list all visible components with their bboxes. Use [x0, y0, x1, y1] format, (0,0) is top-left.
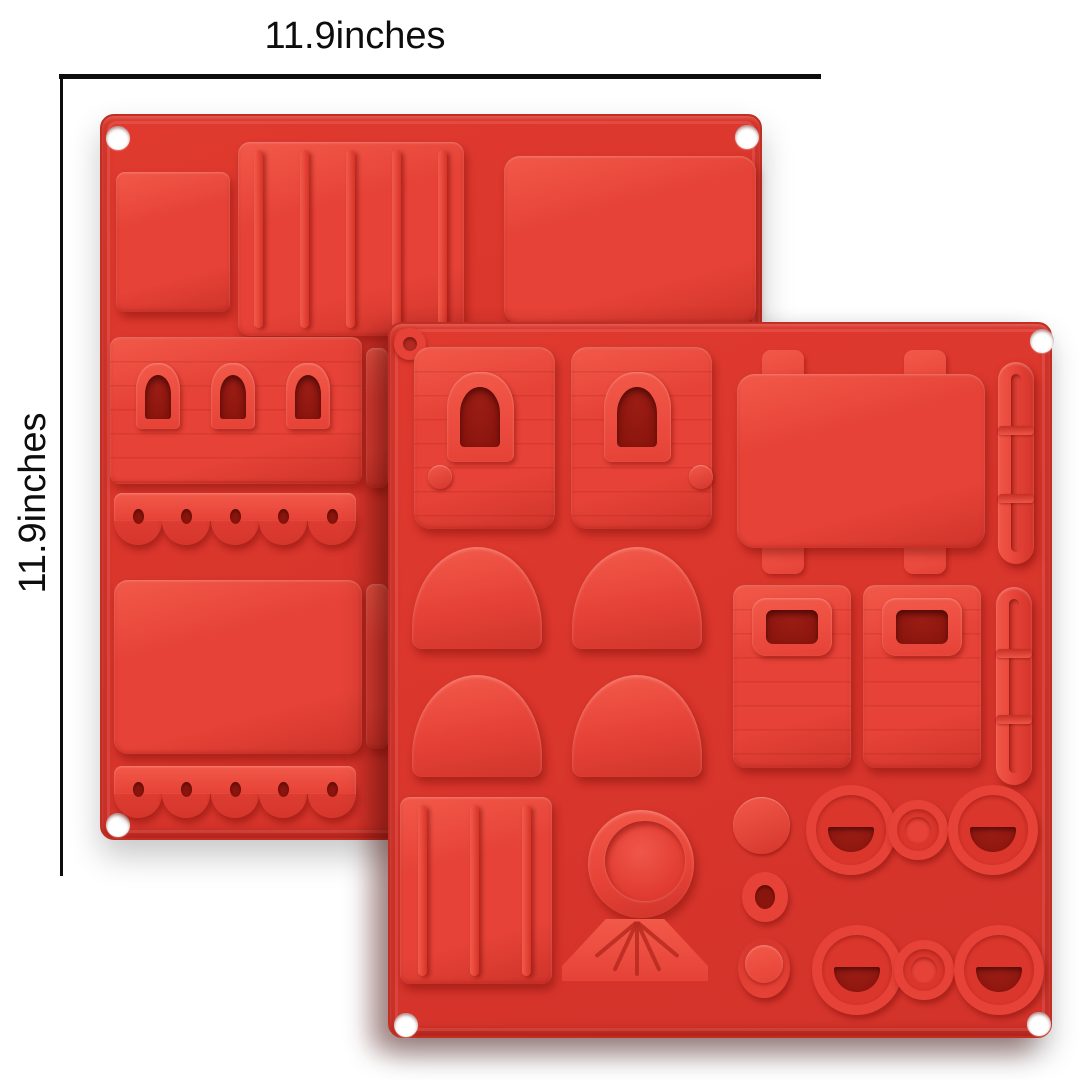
wheel-hub	[905, 817, 931, 843]
roof-rib	[346, 150, 355, 328]
cavity-cab-front	[571, 347, 712, 529]
roof-rib	[522, 805, 531, 976]
train-wheel-large	[948, 785, 1038, 875]
width-dimension-line	[59, 74, 821, 79]
axle-hole	[133, 782, 144, 797]
cavity-plain-rectangle	[504, 156, 756, 324]
train-wheel-large	[954, 925, 1044, 1015]
back-corner-hole-top-left	[106, 126, 130, 150]
train-wheel-large	[812, 925, 902, 1015]
axle-hole	[181, 509, 192, 524]
cavity-ring	[742, 872, 788, 922]
cavity-wheel-set	[812, 923, 1044, 1017]
cowcatcher-rib	[635, 922, 639, 976]
cavity-cylinder	[738, 938, 790, 998]
boiler-inner-disc	[605, 821, 685, 901]
carriage-window-hole	[220, 375, 246, 419]
wagon-window-hole	[896, 610, 948, 644]
roof-rib	[300, 150, 309, 328]
train-wheel-small	[894, 940, 954, 1000]
cavity-wheel-strip	[114, 766, 356, 820]
roof-rib	[392, 150, 401, 328]
cavity-square-block	[116, 172, 230, 312]
front-corner-hole-bottom-left	[394, 1013, 418, 1037]
cavity-wheel-strip	[114, 493, 356, 547]
cavity-ribbed-roof-front	[400, 797, 552, 984]
cavity-dome	[412, 547, 542, 649]
width-dimension-label: 11.9inches	[245, 14, 465, 58]
cavity-dome	[412, 675, 542, 777]
cavity-dome	[572, 675, 702, 777]
cab-rivet-dot	[689, 465, 713, 489]
cab-window-hole	[460, 387, 500, 447]
cylinder-top	[745, 945, 783, 983]
roof-rib	[438, 150, 447, 328]
rod-notch	[998, 494, 1034, 503]
cab-rivet-dot	[428, 465, 452, 489]
carriage-window-hole	[295, 375, 321, 419]
height-dimension-label: 11.9inches	[11, 363, 55, 643]
cab-window-frame	[604, 372, 671, 462]
cavity-dome	[572, 547, 702, 649]
cavity-partial-hidden	[366, 584, 388, 749]
wheel-counterweight	[834, 967, 880, 992]
rod-notch	[998, 426, 1034, 435]
wagon-window-hole	[766, 610, 818, 644]
axle-hole	[181, 782, 192, 797]
cavity-cab-front	[414, 347, 555, 529]
axle-hole	[327, 782, 338, 797]
train-wheel-large	[806, 785, 896, 875]
carriage-window-frame	[211, 363, 255, 429]
rod-slot	[1011, 374, 1021, 552]
roof-rib	[254, 150, 263, 328]
carriage-window-frame	[286, 363, 330, 429]
train-wheel-small	[888, 800, 948, 860]
cavity-large-rectangle	[114, 580, 362, 754]
cavity-wheel-set	[806, 783, 1038, 877]
axle-hole	[278, 509, 289, 524]
axle-hole	[327, 509, 338, 524]
axle-hole	[278, 782, 289, 797]
cavity-coupling-rod	[998, 362, 1034, 564]
axle-hole	[230, 509, 241, 524]
cavity-small-disc	[733, 797, 790, 854]
rod-notch	[996, 649, 1032, 658]
cavity-coupling-rod	[996, 587, 1032, 785]
cavity-cowcatcher	[562, 919, 708, 981]
rod-notch	[996, 715, 1032, 724]
cavity-carriage	[110, 337, 362, 484]
carriage-window-frame	[136, 363, 180, 429]
cavity-partial-hidden	[366, 348, 388, 488]
cavity-boiler-front	[588, 810, 694, 918]
wagon-window-frame	[882, 598, 962, 656]
front-corner-hole-top-right	[1030, 329, 1054, 353]
cavity-wagon-side	[733, 585, 851, 768]
wagon-window-frame	[752, 598, 832, 656]
cab-window-hole	[617, 387, 657, 447]
wheel-counterweight	[828, 827, 874, 852]
carriage-window-hole	[145, 375, 171, 419]
cowcatcher-rib	[594, 920, 638, 958]
product-photo-stage: 11.9inches 11.9inches	[0, 0, 1080, 1080]
rod-slot	[1009, 599, 1019, 773]
roof-rib	[470, 805, 479, 976]
roof-rib	[418, 805, 427, 976]
front-mold-tray	[388, 322, 1052, 1038]
back-corner-hole-top-right	[735, 125, 759, 149]
wheel-hub	[911, 957, 937, 983]
axle-hole	[230, 782, 241, 797]
cab-window-frame	[447, 372, 514, 462]
cavity-chassis-plate	[737, 374, 985, 548]
wheel-counterweight	[970, 827, 1016, 852]
height-dimension-line	[60, 74, 63, 876]
cavity-ribbed-roof-back	[238, 142, 464, 336]
wheel-counterweight	[976, 967, 1022, 992]
cavity-wagon-side	[863, 585, 981, 768]
axle-hole	[133, 509, 144, 524]
